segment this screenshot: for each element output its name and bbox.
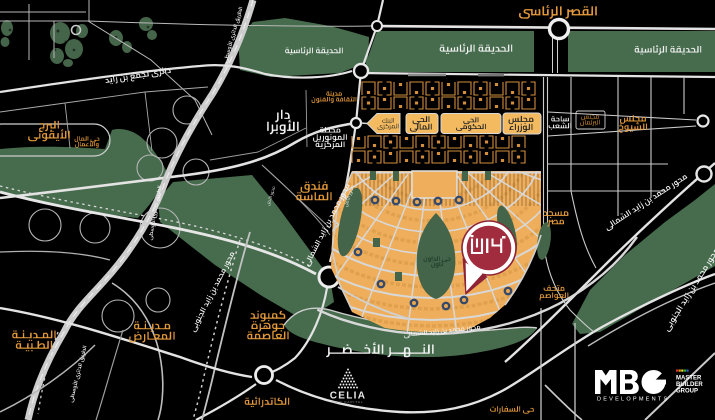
svg-text:MASTER: MASTER: [676, 376, 702, 382]
svg-text:GROUP: GROUP: [676, 389, 698, 395]
svg-text:NEW CAPITAL: NEW CAPITAL: [332, 400, 363, 404]
svg-text:DEVELOPMENTS: DEVELOPMENTS: [597, 397, 669, 403]
svg-text:BUILDER: BUILDER: [676, 382, 703, 388]
